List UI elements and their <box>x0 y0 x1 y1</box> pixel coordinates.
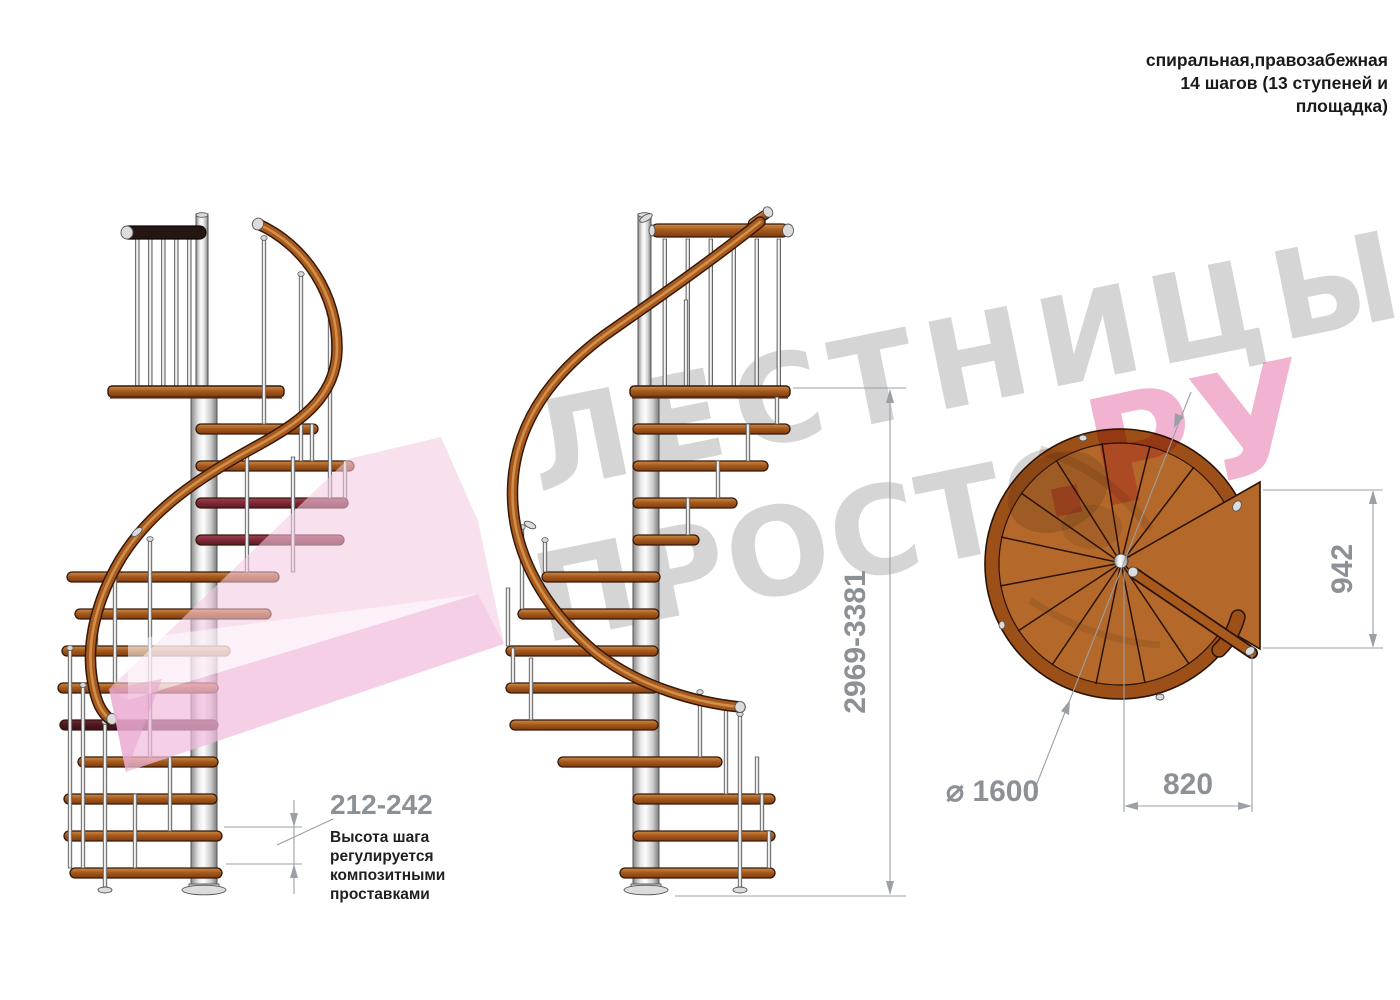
staircase-technical-drawing: ЛЕСТНИЦЫ ПРОСТО <box>0 0 1400 1000</box>
handrail-end-cap-b <box>735 701 745 712</box>
landing-depth-label: 820 <box>1163 768 1213 801</box>
total-height-label: 2969-3381 <box>839 570 872 713</box>
pole-base-flange-b <box>624 885 668 895</box>
watermark-logo-ribbon <box>109 437 504 772</box>
title-line-3: площадка) <box>1296 96 1388 116</box>
title-line-2: 14 шагов (13 ступеней и <box>1180 73 1388 93</box>
dimension-landing-width: 942 <box>1263 490 1383 648</box>
note-line-2: регулируется <box>330 848 433 865</box>
pole-base-flange <box>182 885 226 895</box>
step-height-note: Высота шага регулируется композитными пр… <box>330 829 445 903</box>
balcony-handrail-b <box>651 224 789 237</box>
note-line-3: композитными <box>330 867 445 884</box>
note-line-4: проставками <box>330 886 430 903</box>
baluster-foot-b <box>733 887 747 893</box>
note-line-1: Высота шага <box>330 829 430 846</box>
landing-platform-b <box>630 386 790 397</box>
title-block: спиральная,правозабежная 14 шагов (13 ст… <box>1146 50 1388 116</box>
diameter-label: ⌀ 1600 <box>946 775 1039 808</box>
baluster-foot <box>98 887 112 893</box>
balcony-handrail <box>122 226 206 239</box>
balcony-post <box>196 214 208 388</box>
landing-platform <box>108 386 284 397</box>
landing-width-label: 942 <box>1326 544 1359 594</box>
step-height-label: 212-242 <box>330 789 433 820</box>
drawing-page: ЛЕСТНИЦЫ ПРОСТО <box>0 0 1400 1000</box>
title-line-1: спиральная,правозабежная <box>1146 50 1388 70</box>
balcony-railing <box>121 226 206 386</box>
